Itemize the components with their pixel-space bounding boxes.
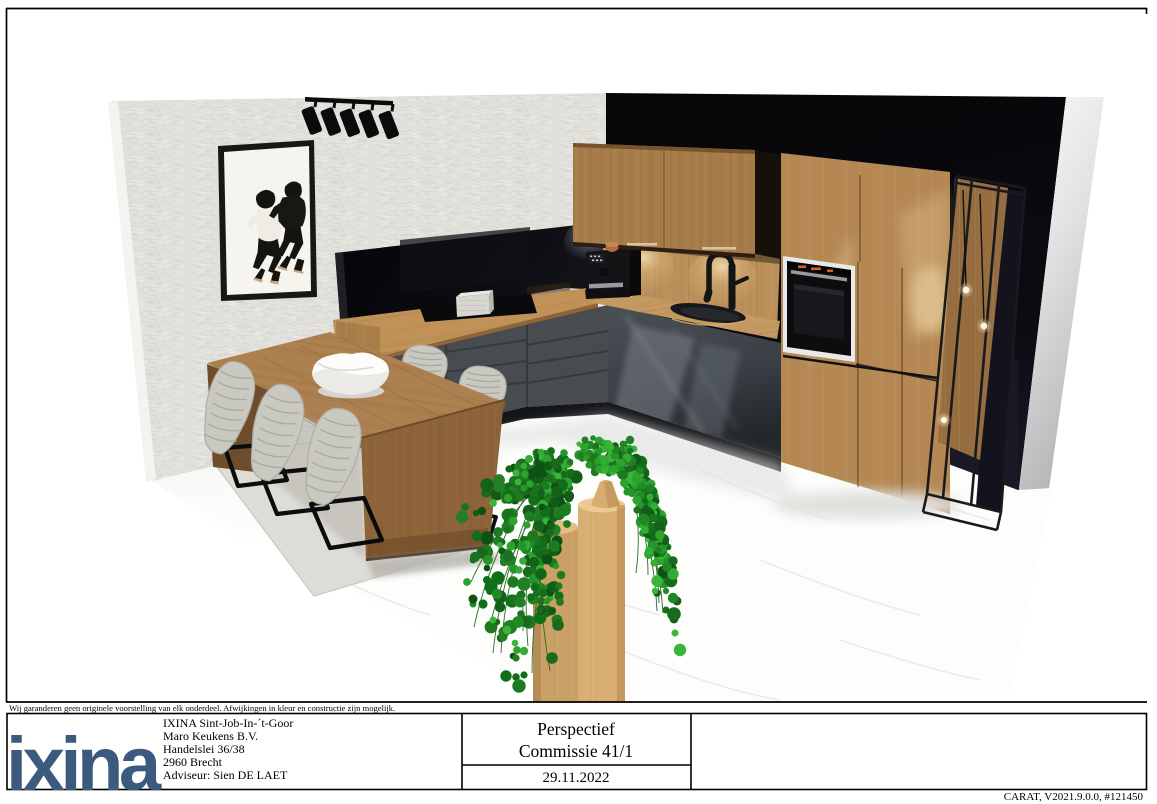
- svg-text:Handelslei 36/38: Handelslei 36/38: [163, 742, 245, 756]
- svg-text:2960 Brecht: 2960 Brecht: [163, 755, 223, 769]
- svg-text:29.11.2022: 29.11.2022: [543, 770, 610, 786]
- svg-text:Perspectief: Perspectief: [537, 719, 615, 739]
- svg-text:IXINA Sint-Job-In-´t-Goor: IXINA Sint-Job-In-´t-Goor: [163, 716, 293, 730]
- svg-text:Maro Keukens B.V.: Maro Keukens B.V.: [163, 729, 258, 743]
- svg-text:Commissie 41/1: Commissie 41/1: [519, 741, 633, 761]
- svg-text:Wij garanderen geen originele: Wij garanderen geen originele voorstelli…: [9, 703, 395, 713]
- svg-text:ixina: ixina: [6, 722, 162, 804]
- svg-text:CARAT, V2021.9.0.0, #121450: CARAT, V2021.9.0.0, #121450: [1004, 791, 1144, 803]
- svg-text:Adviseur: Sien DE LAET: Adviseur: Sien DE LAET: [163, 768, 288, 782]
